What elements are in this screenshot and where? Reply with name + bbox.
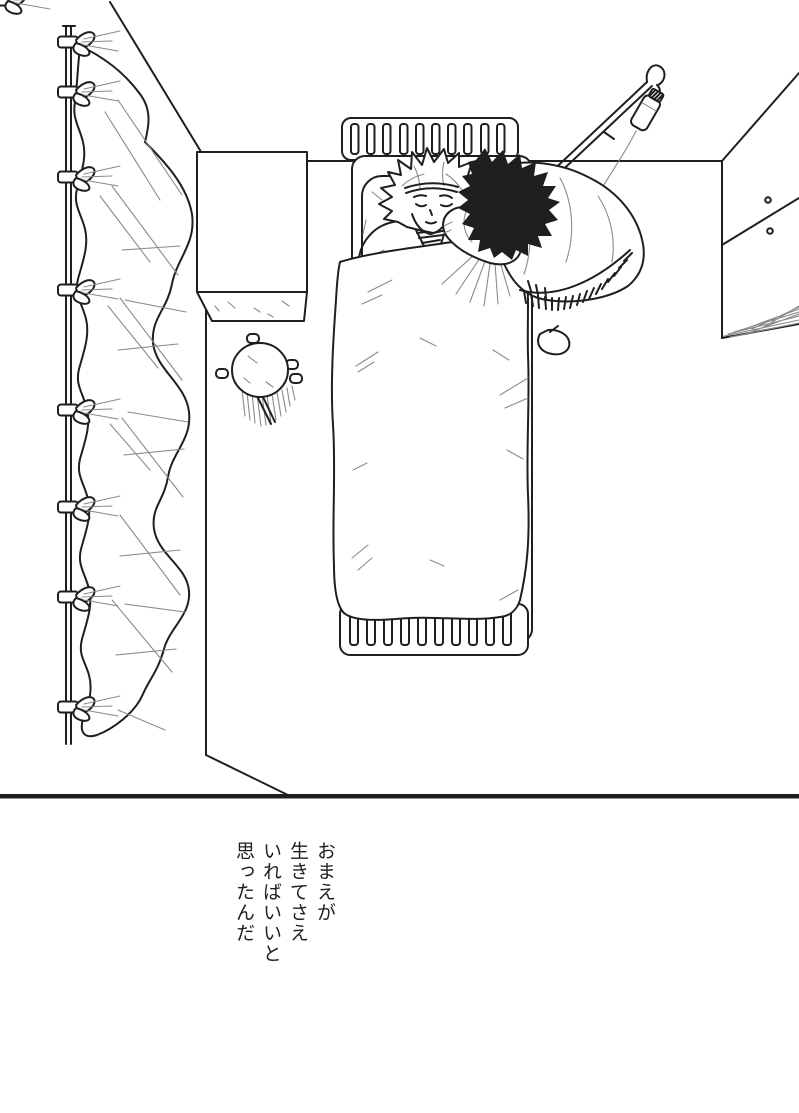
caption-text: おまえが 生きてさえ いればいいと 思ったんだ: [230, 841, 338, 986]
bedside-cabinet: [197, 152, 307, 321]
panel-baseline: [0, 794, 799, 799]
visitor-foot: [538, 330, 569, 354]
wardrobe-door-seam: [722, 198, 799, 245]
wardrobe: [722, 73, 799, 338]
wardrobe-knob: [765, 197, 771, 203]
panel-artwork: [0, 0, 799, 800]
manga-page: おまえが 生きてさえ いればいいと 思ったんだ: [0, 0, 799, 1113]
wardrobe-base-hatch: [724, 306, 799, 337]
curtain: [0, 0, 193, 744]
blanket: [332, 233, 529, 620]
stool-leg-stub: [216, 369, 228, 378]
stool-leg-stub: [247, 334, 259, 343]
wardrobe-knob: [767, 228, 773, 234]
stool: [216, 334, 302, 426]
stool-seat: [232, 343, 288, 397]
curtain-rail: [63, 26, 75, 744]
wardrobe-top-edge: [722, 73, 799, 161]
stool-leg-stub: [290, 374, 302, 383]
cabinet-top-face: [197, 152, 307, 292]
wall-corner-bottom-left: [206, 755, 292, 797]
iv-drip-line: [602, 131, 636, 188]
curtain-fabric: [74, 46, 192, 736]
curtain-clip: [58, 31, 120, 56]
cabinet-front-face: [197, 292, 307, 321]
iv-pole-joint: [604, 132, 614, 139]
